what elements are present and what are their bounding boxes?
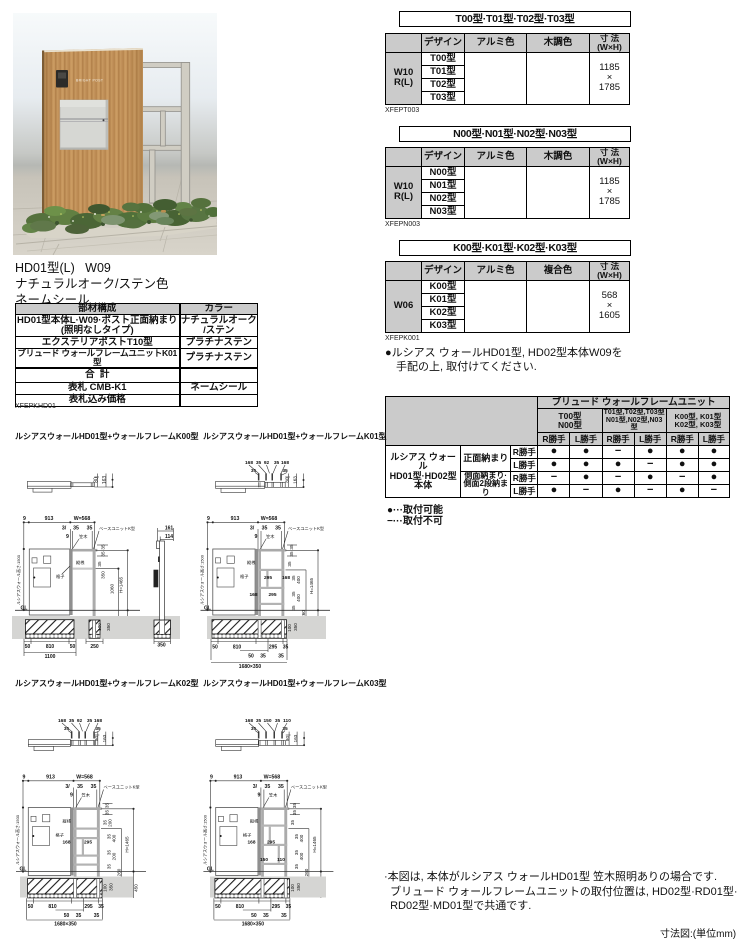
svg-text:ベースユニットK型: ベースユニットK型 bbox=[291, 784, 327, 790]
svg-text:50: 50 bbox=[70, 644, 76, 650]
svg-text:35: 35 bbox=[286, 904, 292, 910]
svg-text:100: 100 bbox=[287, 624, 292, 632]
svg-text:150: 150 bbox=[260, 857, 268, 863]
svg-text:35: 35 bbox=[278, 654, 284, 660]
svg-text:161: 161 bbox=[165, 526, 174, 532]
svg-text:縦桟: 縦桟 bbox=[247, 559, 256, 566]
svg-text:縦桟: 縦桟 bbox=[76, 559, 85, 566]
svg-text:35: 35 bbox=[105, 810, 110, 816]
svg-text:163: 163 bbox=[293, 476, 298, 484]
svg-text:35: 35 bbox=[107, 864, 112, 870]
svg-text:ベースユニットK型: ベースユニットK型 bbox=[288, 525, 324, 531]
svg-text:200: 200 bbox=[108, 819, 113, 827]
svg-text:35: 35 bbox=[265, 784, 271, 790]
svg-text:9: 9 bbox=[23, 775, 26, 781]
svg-text:W=568: W=568 bbox=[261, 516, 278, 522]
svg-text:35: 35 bbox=[101, 544, 106, 550]
svg-text:35: 35 bbox=[290, 820, 295, 826]
svg-text:3/: 3/ bbox=[65, 784, 70, 790]
svg-text:295: 295 bbox=[268, 592, 276, 598]
svg-text:35: 35 bbox=[101, 551, 106, 557]
svg-text:35: 35 bbox=[105, 803, 110, 809]
svg-text:笠木: 笠木 bbox=[269, 792, 278, 799]
svg-text:35: 35 bbox=[278, 784, 284, 790]
svg-text:168: 168 bbox=[247, 840, 255, 846]
svg-text:200: 200 bbox=[112, 852, 117, 860]
svg-text:1680×350: 1680×350 bbox=[239, 664, 262, 670]
svg-text:35: 35 bbox=[262, 526, 268, 532]
svg-text:260: 260 bbox=[117, 868, 122, 876]
svg-text:35: 35 bbox=[287, 561, 292, 567]
svg-text:50: 50 bbox=[212, 645, 218, 651]
svg-text:50: 50 bbox=[215, 904, 221, 910]
svg-text:格子: 格子 bbox=[240, 573, 248, 580]
svg-text:35: 35 bbox=[263, 913, 269, 919]
svg-text:ルシアスウォール高さ:1500: ルシアスウォール高さ:1500 bbox=[15, 554, 21, 605]
svg-text:1680×350: 1680×350 bbox=[54, 922, 77, 928]
svg-text:縦桟: 縦桟 bbox=[63, 818, 72, 825]
svg-text:3/: 3/ bbox=[62, 526, 67, 532]
svg-text:50: 50 bbox=[251, 913, 257, 919]
svg-text:168: 168 bbox=[62, 840, 70, 846]
svg-text:350: 350 bbox=[157, 643, 166, 649]
svg-text:810: 810 bbox=[48, 904, 57, 910]
svg-text:格子: 格子 bbox=[243, 832, 251, 839]
svg-text:50: 50 bbox=[25, 644, 31, 650]
svg-text:35: 35 bbox=[291, 605, 296, 611]
svg-text:H=1465: H=1465 bbox=[312, 836, 317, 853]
svg-text:ルシアスウォール高さ:1500: ルシアスウォール高さ:1500 bbox=[202, 814, 208, 865]
svg-text:35: 35 bbox=[275, 526, 281, 532]
svg-text:縦桟: 縦桟 bbox=[250, 818, 259, 825]
svg-text:35: 35 bbox=[91, 784, 97, 790]
svg-text:350: 350 bbox=[296, 883, 301, 891]
svg-text:50: 50 bbox=[248, 654, 254, 660]
svg-text:35: 35 bbox=[260, 654, 266, 660]
svg-text:80: 80 bbox=[94, 477, 100, 483]
svg-text:295: 295 bbox=[272, 904, 281, 910]
svg-text:ルシアスウォール高さ:1500: ルシアスウォール高さ:1500 bbox=[14, 814, 20, 865]
svg-text:3/: 3/ bbox=[253, 784, 258, 790]
svg-text:W=568: W=568 bbox=[74, 516, 91, 522]
svg-text:168: 168 bbox=[249, 592, 257, 598]
svg-text:35: 35 bbox=[294, 864, 299, 870]
svg-text:450: 450 bbox=[134, 884, 139, 892]
svg-text:80: 80 bbox=[94, 736, 99, 742]
svg-text:295: 295 bbox=[84, 904, 93, 910]
svg-text:1680×350: 1680×350 bbox=[242, 922, 265, 928]
svg-text:100: 100 bbox=[103, 884, 108, 892]
svg-text:35: 35 bbox=[76, 913, 82, 919]
svg-text:35: 35 bbox=[283, 645, 289, 651]
svg-text:80: 80 bbox=[285, 477, 290, 483]
svg-text:114: 114 bbox=[165, 534, 173, 540]
svg-text:H=1465: H=1465 bbox=[119, 576, 124, 593]
svg-text:35: 35 bbox=[281, 913, 287, 919]
svg-text:H=1465: H=1465 bbox=[125, 836, 130, 853]
svg-text:810: 810 bbox=[236, 904, 245, 910]
svg-text:9: 9 bbox=[70, 793, 73, 799]
svg-text:35: 35 bbox=[292, 810, 297, 816]
svg-text:913: 913 bbox=[234, 775, 243, 781]
svg-text:110: 110 bbox=[277, 857, 285, 863]
svg-text:9: 9 bbox=[257, 793, 260, 799]
svg-text:913: 913 bbox=[231, 516, 240, 522]
svg-text:810: 810 bbox=[46, 644, 55, 650]
svg-text:400: 400 bbox=[299, 852, 304, 860]
svg-text:913: 913 bbox=[45, 516, 54, 522]
svg-text:913: 913 bbox=[46, 775, 55, 781]
svg-text:W=568: W=568 bbox=[76, 775, 93, 781]
svg-text:50: 50 bbox=[64, 913, 70, 919]
svg-text:260: 260 bbox=[304, 868, 309, 876]
svg-text:ベースユニットK型: ベースユニットK型 bbox=[104, 784, 140, 790]
svg-text:ルシアスウォール高さ:1500: ルシアスウォール高さ:1500 bbox=[200, 554, 205, 605]
svg-text:笠木: 笠木 bbox=[82, 792, 91, 799]
svg-text:35: 35 bbox=[97, 561, 102, 567]
svg-text:1060: 1060 bbox=[110, 583, 115, 594]
svg-text:ベースユニットK型: ベースユニットK型 bbox=[99, 525, 135, 531]
svg-text:400: 400 bbox=[296, 594, 301, 602]
svg-text:9: 9 bbox=[255, 534, 258, 540]
svg-text:格子: 格子 bbox=[56, 573, 64, 580]
svg-text:9: 9 bbox=[23, 516, 26, 522]
svg-text:笠木: 笠木 bbox=[266, 533, 275, 540]
svg-text:W=568: W=568 bbox=[264, 775, 281, 781]
svg-text:格子: 格子 bbox=[56, 832, 64, 839]
svg-text:1100: 1100 bbox=[45, 654, 56, 660]
svg-text:100: 100 bbox=[290, 884, 295, 892]
svg-text:BRIGHT POST: BRIGHT POST bbox=[76, 79, 103, 83]
svg-text:810: 810 bbox=[233, 645, 242, 651]
svg-text:295: 295 bbox=[267, 840, 275, 846]
svg-text:400: 400 bbox=[299, 834, 304, 842]
svg-text:3/: 3/ bbox=[250, 526, 255, 532]
svg-text:250: 250 bbox=[90, 644, 99, 650]
svg-text:H=1465: H=1465 bbox=[309, 577, 314, 594]
svg-text:9: 9 bbox=[207, 516, 210, 522]
svg-text:400: 400 bbox=[296, 576, 301, 584]
svg-text:163: 163 bbox=[102, 734, 107, 742]
svg-text:笠木: 笠木 bbox=[79, 533, 88, 540]
svg-text:350: 350 bbox=[293, 623, 298, 631]
svg-text:35: 35 bbox=[87, 526, 93, 532]
svg-text:9: 9 bbox=[210, 775, 213, 781]
svg-text:163: 163 bbox=[102, 476, 108, 485]
svg-text:35: 35 bbox=[73, 526, 79, 532]
svg-text:350: 350 bbox=[109, 883, 114, 891]
svg-text:35: 35 bbox=[94, 913, 100, 919]
svg-text:50: 50 bbox=[28, 904, 34, 910]
svg-text:168: 168 bbox=[282, 575, 290, 581]
svg-text:400: 400 bbox=[112, 834, 117, 842]
svg-text:35: 35 bbox=[292, 803, 297, 809]
svg-text:295: 295 bbox=[84, 840, 92, 846]
svg-text:35: 35 bbox=[289, 544, 294, 550]
svg-text:80: 80 bbox=[285, 736, 290, 742]
svg-text:35: 35 bbox=[77, 784, 83, 790]
svg-text:350: 350 bbox=[106, 623, 111, 631]
svg-text:163: 163 bbox=[293, 734, 298, 742]
svg-text:35: 35 bbox=[289, 551, 294, 557]
svg-text:100: 100 bbox=[97, 623, 102, 631]
svg-text:350: 350 bbox=[101, 571, 106, 579]
svg-text:295: 295 bbox=[269, 645, 278, 651]
svg-text:9: 9 bbox=[66, 534, 69, 540]
svg-text:295: 295 bbox=[264, 575, 272, 581]
svg-text:35: 35 bbox=[98, 904, 104, 910]
